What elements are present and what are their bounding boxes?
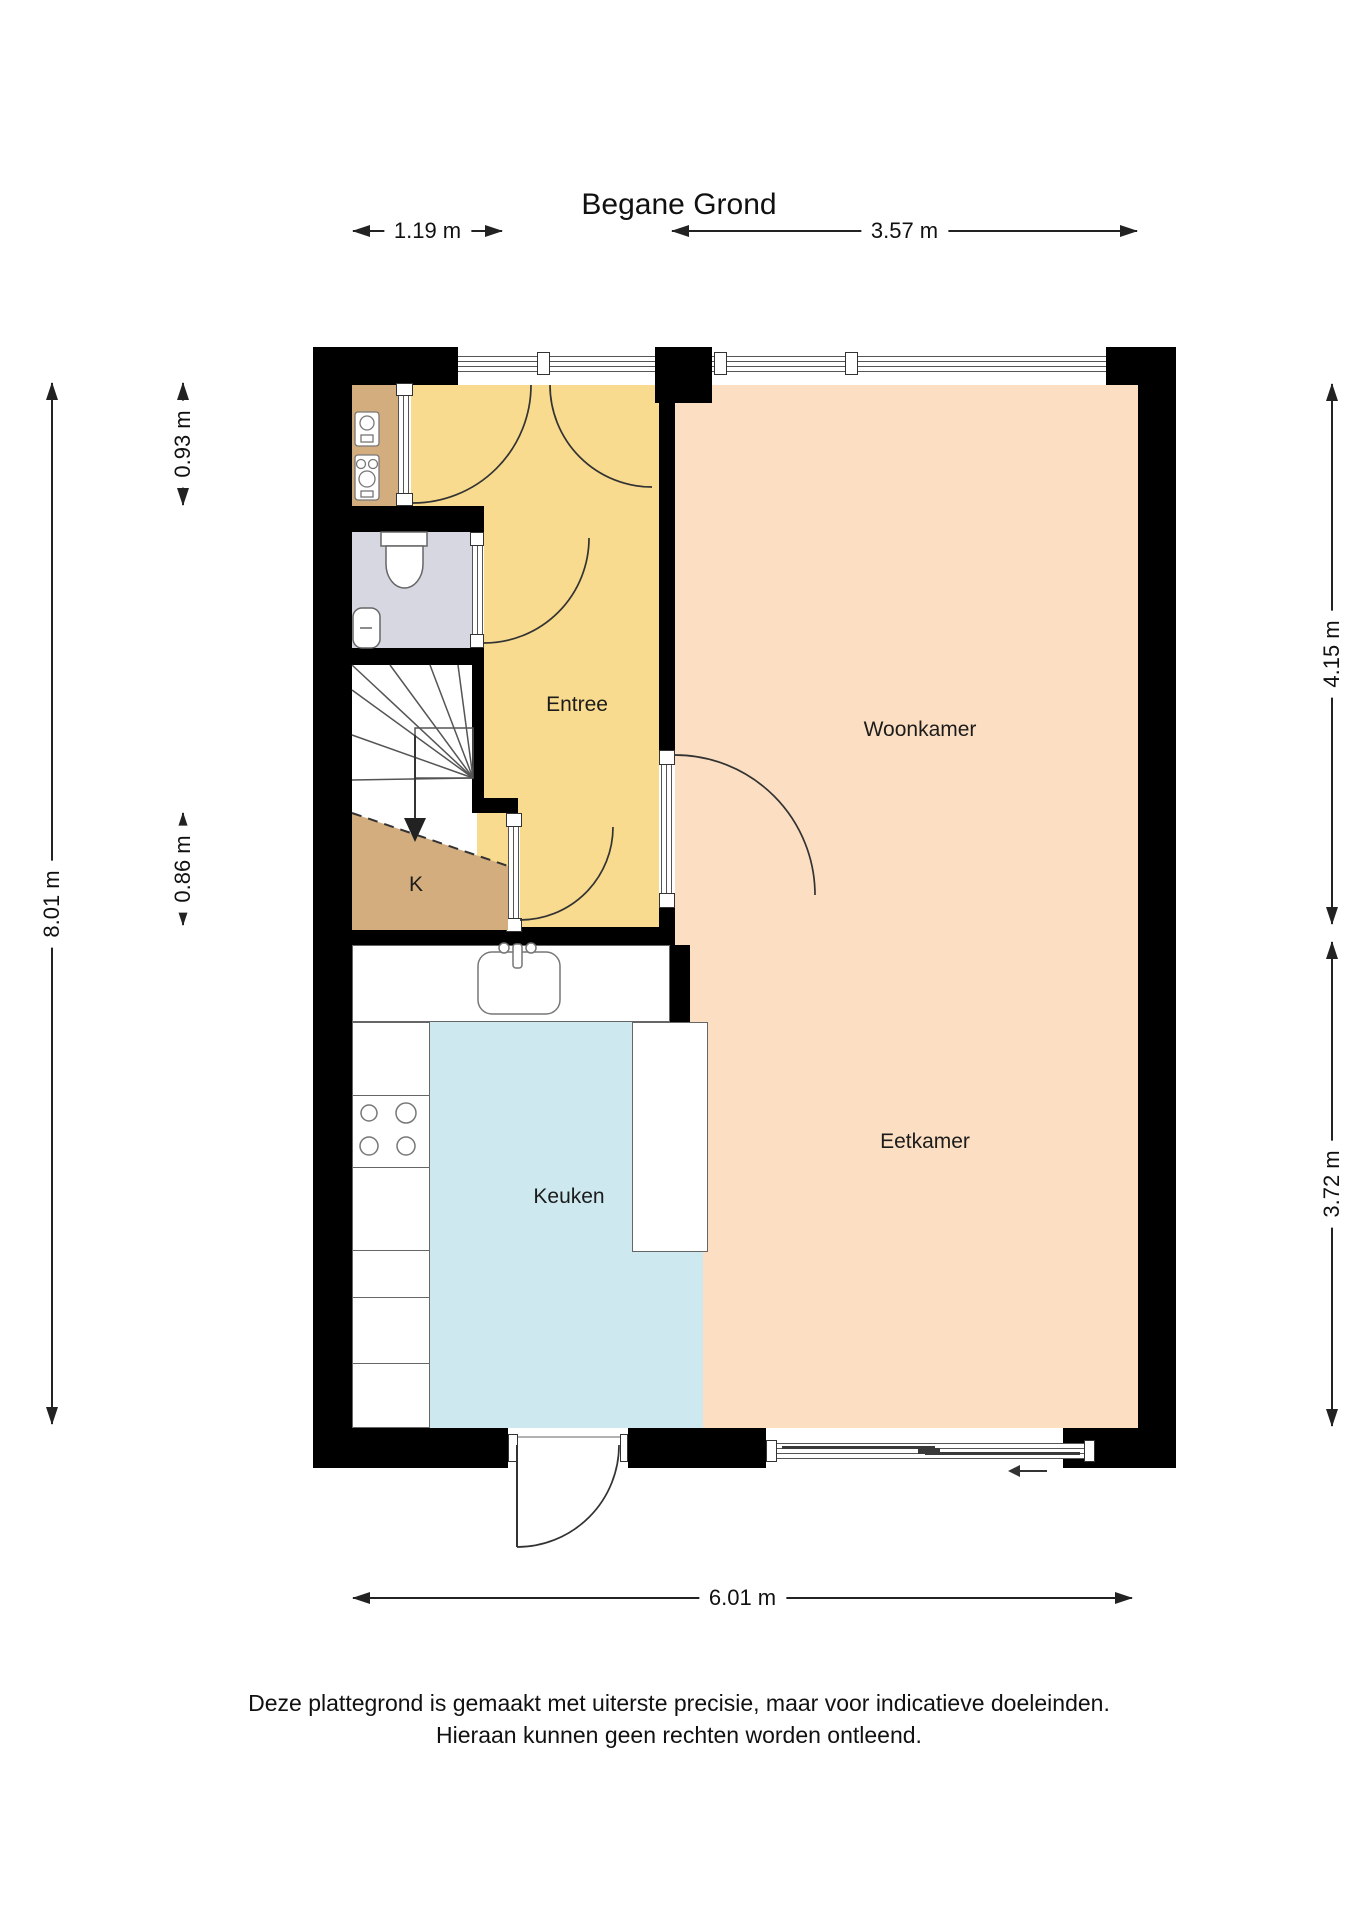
room-label-eetkamer: Eetkamer: [880, 1130, 970, 1154]
door-jamb: [659, 893, 675, 908]
door-jamb: [659, 750, 675, 765]
meter-closet-door: [398, 383, 411, 506]
arrowhead-left-icon: [352, 225, 370, 237]
arrowhead-up-icon: [46, 382, 58, 400]
dimension-label: 6.01 m: [699, 1585, 786, 1611]
window-mullion: [845, 352, 858, 375]
kitchen-counter-stove-cell: [352, 1095, 430, 1168]
disclaimer-line-1: Deze plattegrond is gemaakt met uiterste…: [0, 1690, 1358, 1717]
room-label-entree: Entree: [546, 693, 608, 717]
door-jamb: [766, 1440, 777, 1462]
room-living-dining-floor: [675, 385, 1138, 1428]
sliding-door-panel: [782, 1446, 935, 1449]
wall-top-left-block: [313, 347, 458, 385]
door-jamb: [470, 532, 484, 546]
kitchen-counter-cell: [352, 1250, 430, 1298]
kitchen-counter-cell: [352, 1167, 430, 1251]
window-mullion: [714, 352, 727, 375]
room-label-woonkamer: Woonkamer: [864, 718, 977, 742]
window-mullion: [537, 352, 550, 375]
kitchen-counter-sink-run: [352, 945, 670, 1022]
wall-bottom-left: [313, 1428, 508, 1468]
dimension-label: 3.57 m: [861, 218, 948, 244]
arrowhead-down-icon: [1326, 1409, 1338, 1427]
sliding-door-handle: [918, 1448, 940, 1454]
toilet-room-floor: [352, 532, 472, 648]
door-jamb: [506, 918, 522, 932]
arrowhead-right-icon: [1120, 225, 1138, 237]
wall-top-pillar: [655, 347, 712, 403]
door-jamb: [396, 383, 413, 396]
dimension-label: 1.19 m: [384, 218, 471, 244]
kitchen-counter-cell: [352, 1363, 430, 1428]
door-jamb: [506, 813, 522, 827]
arrowhead-left-icon: [352, 1592, 370, 1604]
arrowhead-right-icon: [485, 225, 503, 237]
door-jamb: [1084, 1440, 1095, 1462]
under-stairs-closet-door: [508, 827, 520, 918]
entree-living-door: [661, 765, 673, 893]
wall-entree-living-lower: [659, 908, 675, 927]
dimension-label: 8.01 m: [39, 860, 65, 947]
toilet-door: [472, 535, 484, 645]
door-jamb: [470, 634, 484, 648]
arrowhead-up-icon: [1326, 941, 1338, 959]
glazed-door-top-band: [550, 356, 655, 372]
wall-below-hall: [313, 927, 675, 945]
arrowhead-down-icon: [46, 1407, 58, 1425]
room-label-kast: K: [409, 873, 423, 897]
window-top-2: [712, 356, 1106, 372]
wall-exterior-right: [1138, 347, 1176, 1468]
dimension-label: 0.86 m: [170, 825, 196, 912]
wall-kitchen-stub: [670, 945, 690, 1022]
front-door-leaf: [517, 1437, 620, 1547]
arrowhead-down-icon: [177, 488, 189, 506]
arrowhead-left-icon: [671, 225, 689, 237]
room-label-keuken: Keuken: [533, 1185, 604, 1209]
arrowhead-up-icon: [1326, 383, 1338, 401]
door-jamb: [396, 493, 413, 506]
kitchen-peninsula-counter: [632, 1022, 708, 1252]
dimension-label: 3.72 m: [1319, 1140, 1345, 1227]
stairwell-floor: [352, 665, 477, 860]
wall-top-right-corner: [1106, 347, 1176, 385]
arrowhead-down-icon: [1326, 907, 1338, 925]
meter-closet-floor: [352, 383, 398, 506]
door-swing-arc-icon: [517, 1445, 619, 1547]
wall-toilet-stairs: [313, 648, 484, 665]
floorplan-page: Begane Grond: [0, 0, 1358, 1920]
arrowhead-right-icon: [1115, 1592, 1133, 1604]
wall-bottom-middle: [628, 1428, 766, 1468]
window-top-1: [458, 356, 537, 372]
sliding-door-panel: [925, 1452, 1080, 1455]
arrowhead-up-icon: [177, 382, 189, 400]
dimension-label: 4.15 m: [1319, 610, 1345, 697]
wall-entree-living-upper: [659, 403, 675, 750]
front-door-jamb: [620, 1434, 628, 1462]
kitchen-counter-cell: [352, 1297, 430, 1364]
wall-stair-stub: [475, 798, 518, 813]
slide-direction-arrow-icon: [1008, 1465, 1047, 1477]
page-title: Begane Grond: [581, 188, 776, 222]
kitchen-counter-cell: [352, 1022, 430, 1096]
front-door-jamb: [508, 1434, 518, 1462]
disclaimer-line-2: Hieraan kunnen geen rechten worden ontle…: [0, 1722, 1358, 1749]
wall-closet-toilet: [313, 506, 484, 532]
dimension-label: 0.93 m: [170, 400, 196, 487]
